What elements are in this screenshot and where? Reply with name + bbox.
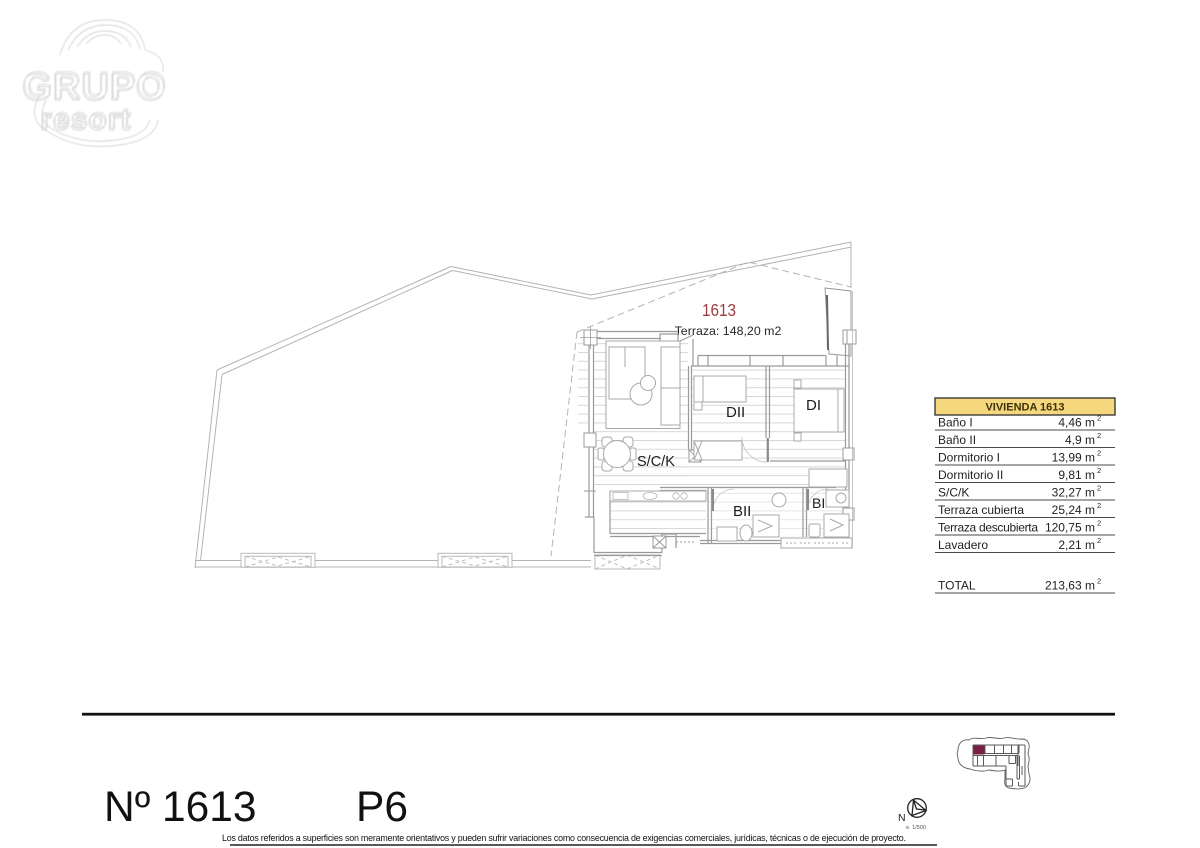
svg-text:S/C/K: S/C/K [938, 486, 969, 500]
svg-text:2: 2 [1097, 431, 1101, 440]
svg-text:Nº 1613: Nº 1613 [104, 784, 257, 831]
svg-text:2: 2 [1097, 449, 1101, 458]
svg-text:S/C/K: S/C/K [637, 454, 675, 470]
svg-text:2: 2 [1097, 501, 1101, 510]
svg-text:32,27 m: 32,27 m [1052, 486, 1095, 500]
svg-text:2: 2 [1097, 577, 1101, 586]
svg-text:Terraza cubierta: Terraza cubierta [938, 503, 1024, 517]
svg-text:resort: resort [41, 102, 132, 135]
svg-text:DII: DII [726, 404, 745, 421]
svg-text:BI: BI [812, 495, 825, 511]
svg-text:Dormitorio I: Dormitorio I [938, 451, 1000, 465]
svg-text:4,9 m: 4,9 m [1065, 433, 1095, 447]
svg-text:213,63 m: 213,63 m [1045, 579, 1095, 593]
svg-text:2: 2 [1097, 536, 1101, 545]
svg-text:TOTAL: TOTAL [938, 579, 976, 593]
svg-text:4,46 m: 4,46 m [1058, 416, 1095, 430]
svg-text:2: 2 [1097, 414, 1101, 423]
svg-text:Dormitorio II: Dormitorio II [938, 468, 1003, 482]
svg-text:2: 2 [1097, 466, 1101, 475]
svg-text:Baño I: Baño I [938, 416, 973, 430]
svg-text:Terraza descubierta: Terraza descubierta [938, 521, 1038, 535]
svg-text:Lavadero: Lavadero [938, 538, 988, 552]
svg-text:P6: P6 [356, 784, 408, 831]
svg-text:N: N [898, 812, 906, 824]
svg-text:DI: DI [806, 397, 821, 414]
svg-text:1613: 1613 [702, 300, 736, 320]
svg-text:2: 2 [1097, 484, 1101, 493]
svg-text:2,21 m: 2,21 m [1058, 538, 1095, 552]
svg-text:e. 1/500: e. 1/500 [906, 825, 926, 831]
svg-text:25,24 m: 25,24 m [1052, 503, 1095, 517]
svg-text:120,75 m: 120,75 m [1045, 521, 1095, 535]
svg-text:GRUPO: GRUPO [23, 65, 167, 107]
svg-text:BII: BII [733, 503, 751, 520]
svg-text:VIVIENDA 1613: VIVIENDA 1613 [985, 402, 1064, 414]
svg-text:13,99 m: 13,99 m [1052, 451, 1095, 465]
svg-text:Baño II: Baño II [938, 433, 976, 447]
svg-text:2: 2 [1097, 519, 1101, 528]
svg-text:Los datos referidos a superfic: Los datos referidos a superficies son me… [222, 833, 906, 843]
svg-text:9,81 m: 9,81 m [1058, 468, 1095, 482]
